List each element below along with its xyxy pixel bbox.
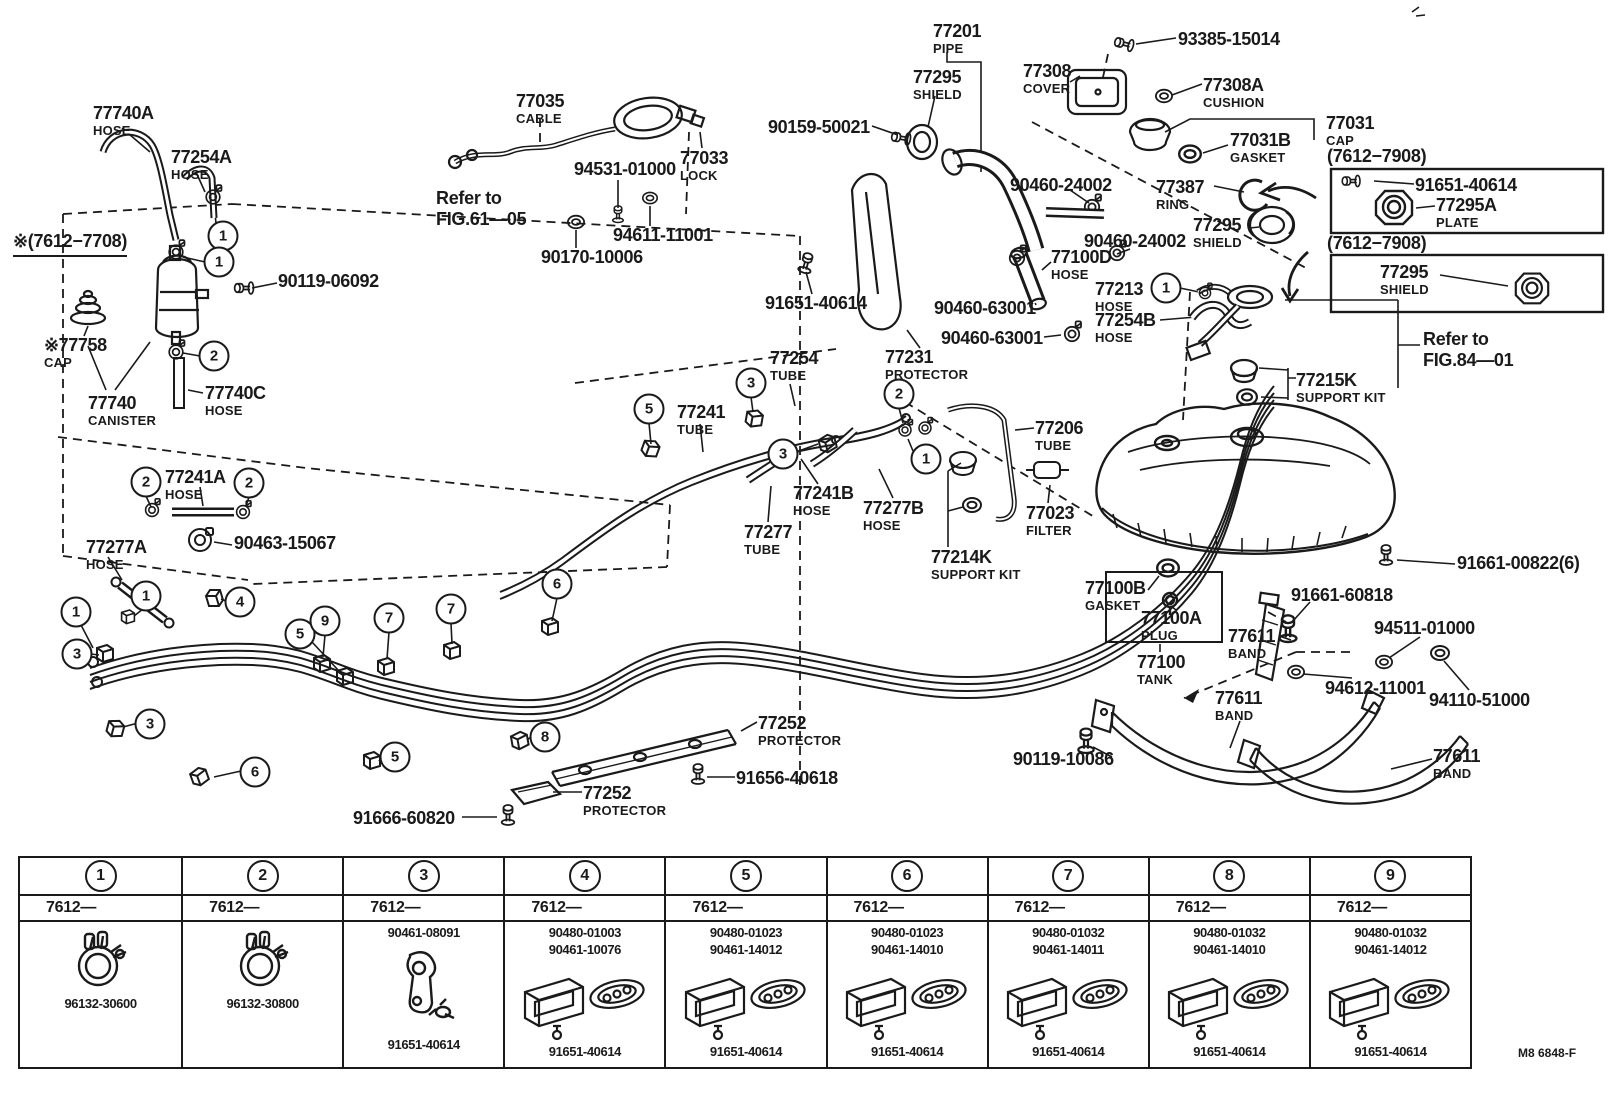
part-number: 77100B: [1085, 579, 1146, 597]
part-name: SHIELD: [1193, 236, 1242, 249]
table-part-number: 90461-14012: [1354, 942, 1426, 959]
part-number: 77241B: [793, 484, 854, 502]
callout-77611-49: 77611BAND: [1228, 627, 1275, 660]
ref-circle-3: 3: [135, 709, 166, 740]
callout-77031-20: 77031CAP: [1326, 114, 1374, 147]
table-col-header: 2: [183, 858, 342, 896]
ref-circle-9: 9: [310, 606, 341, 637]
part-number: 77277A: [86, 538, 147, 556]
part-number: 91661-60818: [1291, 586, 1393, 604]
table-ref-circle-3: 3: [408, 860, 440, 892]
dashed-arrowhead: [1184, 689, 1199, 703]
table-column-9: 97612—90480-0103290461-1401291651-40614: [1309, 858, 1470, 1067]
note-1: Refer toFIG.61—05: [436, 188, 526, 229]
table-cell-body: 90480-0103290461-1401091651-40614: [1150, 922, 1309, 1067]
part-number: 77611: [1433, 747, 1480, 765]
part-number: 77033: [680, 149, 728, 167]
part-number: 77611: [1215, 689, 1262, 707]
part-name: HOSE: [793, 504, 854, 517]
table-col-header: 4: [505, 858, 664, 896]
part-number: 77231: [885, 348, 968, 366]
table-ref-circle-9: 9: [1374, 860, 1406, 892]
part-number: 77206: [1035, 419, 1083, 437]
ref-circle-8: 8: [530, 722, 561, 753]
table-period: 7612—: [344, 896, 503, 922]
callout-77100B-46: 77100BGASKET: [1085, 579, 1146, 612]
table-part-number: 90480-01032: [1193, 925, 1265, 942]
note-line: FIG.84—01: [1423, 350, 1513, 371]
part-name: SUPPORT KIT: [931, 568, 1021, 581]
table-ref-circle-6: 6: [891, 860, 923, 892]
part-number: 77611: [1228, 627, 1275, 645]
note-line: FIG.61—05: [436, 209, 526, 230]
note-line: Refer to: [1423, 329, 1513, 350]
part-name: TUBE: [677, 423, 725, 436]
callout-77295-26: 77295SHIELD: [1380, 263, 1429, 296]
table-col-header: 6: [828, 858, 987, 896]
part-name: PIPE: [933, 42, 981, 55]
callout-9011910086-55: 90119-10086: [1013, 750, 1114, 768]
part-number: 77213: [1095, 280, 1143, 298]
part-name: HOSE: [863, 519, 924, 532]
parts-variant-table: 17612—96132-3060027612—96132-3080037612—…: [18, 856, 1472, 1069]
table-part-number: 90461-14010: [1193, 942, 1265, 959]
parts-diagram-page: M8 6848-F 17612—96132-3060027612—96132-3…: [0, 0, 1608, 1102]
table-period: 7612—: [1311, 896, 1470, 922]
figure-code: M8 6848-F: [1518, 1046, 1576, 1060]
table-period: 7612—: [1150, 896, 1309, 922]
part-name: BAND: [1228, 647, 1275, 660]
channel-clamp-illustration: [1322, 960, 1458, 1043]
table-cell-body: 96132-30600: [20, 922, 181, 1067]
callout-9461211001-52: 94612-11001: [1325, 679, 1426, 697]
callout-77031B-21: 77031BGASKET: [1230, 131, 1291, 164]
channel-clamp-illustration: [517, 960, 653, 1043]
part-number: 77387: [1156, 178, 1204, 196]
part-number: 77254B: [1095, 311, 1156, 329]
part-number: 91656-40618: [736, 769, 838, 787]
part-number: 90460-63001: [934, 299, 1036, 317]
table-period: 7612—: [20, 896, 181, 922]
ref-circle-3: 3: [768, 439, 799, 470]
part-number: 90460-24002: [1010, 176, 1112, 194]
part-number: 77308: [1023, 62, 1071, 80]
callout-77252-57: 77252PROTECTOR: [758, 714, 841, 747]
callout-77252-59: 77252PROTECTOR: [583, 784, 666, 817]
part-number: 77023: [1026, 504, 1074, 522]
note-2: Refer toFIG.84—01: [1423, 329, 1513, 370]
part-number: 94612-11001: [1325, 679, 1426, 697]
callout-77308A-19: 77308ACUSHION: [1203, 76, 1264, 109]
table-column-4: 47612—90480-0100390461-1007691651-40614: [503, 858, 664, 1067]
part-name: PROTECTOR: [758, 734, 841, 747]
part-number: 90170-10006: [541, 248, 643, 266]
part-number: 77100A: [1141, 609, 1202, 627]
part-number: 77254: [770, 349, 818, 367]
ref-circle-5: 5: [634, 394, 665, 425]
part-name: LOCK: [680, 169, 728, 182]
table-part-number: 91651-40614: [1354, 1044, 1426, 1061]
part-name: CANISTER: [88, 414, 156, 427]
part-number: 77241A: [165, 468, 226, 486]
note-3: (7612−7908): [1327, 146, 1426, 167]
callout-77277-43: 77277TUBE: [744, 523, 792, 556]
part-name: COVER: [1023, 82, 1071, 95]
part-number: 77295A: [1436, 196, 1497, 214]
table-column-5: 57612—90480-0102390461-1401291651-40614: [664, 858, 825, 1067]
callout-77740C-5: 77740CHOSE: [205, 384, 266, 417]
callout-77100A-47: 77100APLUG: [1141, 609, 1202, 642]
table-part-number: 90461-14011: [1032, 942, 1104, 959]
table-ref-circle-1: 1: [85, 860, 117, 892]
part-name: SHIELD: [913, 88, 962, 101]
table-cell-body: 90480-0102390461-1401291651-40614: [666, 922, 825, 1067]
callout-9046315067-7: 90463-15067: [234, 534, 336, 552]
part-name: FILTER: [1026, 524, 1074, 537]
callout-77295-25: 77295SHIELD: [1193, 216, 1242, 249]
callout-77611-54: 77611BAND: [1215, 689, 1262, 722]
part-number: 77031: [1326, 114, 1374, 132]
table-period: 7612—: [989, 896, 1148, 922]
table-part-number: 91651-40614: [1032, 1044, 1104, 1061]
ring-clamp-illustration: [227, 926, 299, 995]
table-ref-circle-7: 7: [1052, 860, 1084, 892]
table-column-7: 77612—90480-0103290461-1401191651-40614: [987, 858, 1148, 1067]
table-part-number: 90480-01003: [549, 925, 621, 942]
part-number: 77295: [1380, 263, 1429, 281]
part-name: BAND: [1433, 767, 1480, 780]
part-number: 77214K: [931, 548, 1021, 566]
part-number: 90463-15067: [234, 534, 336, 552]
ref-circle-1: 1: [911, 444, 942, 475]
part-name: CAP: [44, 356, 107, 369]
part-number: 77035: [516, 92, 564, 110]
callout-77206-39: 77206TUBE: [1035, 419, 1083, 452]
callout-9015950021-16: 90159-50021: [768, 118, 870, 136]
callout-9046063001-34: 90460-63001: [941, 329, 1043, 347]
ring-clamp-illustration: [65, 926, 137, 995]
table-part-number: 91651-40614: [388, 1037, 460, 1054]
ref-circle-2: 2: [884, 379, 915, 410]
part-number: 77254A: [171, 148, 232, 166]
table-part-number: 90461-08091: [388, 925, 460, 942]
part-name: RING: [1156, 198, 1204, 211]
callout-77254B-31: 77254BHOSE: [1095, 311, 1156, 344]
part-number: 77308A: [1203, 76, 1264, 94]
part-number: 77252: [758, 714, 841, 732]
table-part-number: 96132-30800: [227, 996, 299, 1013]
callout-77295A-23: 77295APLATE: [1436, 196, 1497, 229]
callout-77213-30: 77213HOSE: [1095, 280, 1143, 313]
callout-77033-11: 77033LOCK: [680, 149, 728, 182]
table-column-1: 17612—96132-30600: [20, 858, 181, 1067]
ref-circle-2: 2: [199, 341, 230, 372]
note-line: (7612−7908): [1327, 146, 1426, 167]
callout-77100D-29: 77100DHOSE: [1051, 248, 1112, 281]
part-name: CUSHION: [1203, 96, 1264, 109]
part-number: 91661-00822(6): [1457, 554, 1580, 572]
part-name: HOSE: [165, 488, 226, 501]
table-part-number: 90480-01032: [1354, 925, 1426, 942]
table-part-number: 91651-40614: [710, 1044, 782, 1061]
callout-77201-14: 77201PIPE: [933, 22, 981, 55]
part-number: 90460-63001: [941, 329, 1043, 347]
callout-9011906092-2: 90119-06092: [278, 272, 379, 290]
callout-9338515014-18: 93385-15014: [1178, 30, 1280, 48]
part-number: 91651-40614: [765, 294, 867, 312]
part-name: SHIELD: [1380, 283, 1429, 296]
note-line: Refer to: [436, 188, 526, 209]
part-name: GASKET: [1230, 151, 1291, 164]
part-number: 77295: [913, 68, 962, 86]
table-col-header: 1: [20, 858, 181, 896]
callout-9046024002-27: 90460-24002: [1010, 176, 1112, 194]
table-column-3: 37612—90461-0809191651-40614: [342, 858, 503, 1067]
table-period: 7612—: [828, 896, 987, 922]
callout-77231-35: 77231PROTECTOR: [885, 348, 968, 381]
callout-77295-15: 77295SHIELD: [913, 68, 962, 101]
part-number: 77100D: [1051, 248, 1112, 266]
callout-77214K-44: 77214KSUPPORT KIT: [931, 548, 1021, 581]
part-name: BAND: [1215, 709, 1262, 722]
table-ref-circle-4: 4: [569, 860, 601, 892]
part-number: 77295: [1193, 216, 1242, 234]
table-cell-body: 90461-0809191651-40614: [344, 922, 503, 1067]
table-part-number: 90461-10076: [549, 942, 621, 959]
channel-clamp-illustration: [1161, 960, 1297, 1043]
table-part-number: 90461-14012: [710, 942, 782, 959]
part-number: 90119-06092: [278, 272, 379, 290]
callout-9017010006-13: 90170-10006: [541, 248, 643, 266]
ref-circle-4: 4: [225, 587, 256, 618]
note-line: (7612−7908): [1327, 233, 1426, 254]
callout-77277B-41: 77277BHOSE: [863, 499, 924, 532]
table-cell-body: 96132-30800: [183, 922, 342, 1067]
part-number: 94511-01000: [1374, 619, 1475, 637]
table-part-number: 91651-40614: [549, 1044, 621, 1061]
callout-77254A-1: 77254AHOSE: [171, 148, 232, 181]
part-name: HOSE: [205, 404, 266, 417]
ref-circle-1: 1: [61, 597, 92, 628]
ref-circle-7: 7: [374, 603, 405, 634]
channel-clamp-illustration: [678, 960, 814, 1043]
part-name: TUBE: [770, 369, 818, 382]
table-column-6: 67612—90480-0102390461-1401091651-40614: [826, 858, 987, 1067]
callout-9166660820-60: 91666-60820: [353, 809, 455, 827]
callout-9451101000-50: 94511-01000: [1374, 619, 1475, 637]
callout-9165140614-22: 91651-40614: [1415, 176, 1517, 194]
part-number: 90119-10086: [1013, 750, 1114, 768]
ref-circle-1: 1: [1151, 273, 1182, 304]
part-name: HOSE: [171, 168, 232, 181]
part-number: 77241: [677, 403, 725, 421]
part-number: 77100: [1137, 653, 1185, 671]
callout-77241B-40: 77241BHOSE: [793, 484, 854, 517]
callout-77254-37: 77254TUBE: [770, 349, 818, 382]
table-cell-body: 90480-0100390461-1007691651-40614: [505, 922, 664, 1067]
part-number: ※77758: [44, 336, 107, 354]
table-period: 7612—: [505, 896, 664, 922]
channel-clamp-illustration: [1000, 960, 1136, 1043]
part-number: 91651-40614: [1415, 176, 1517, 194]
callout-77241-38: 77241TUBE: [677, 403, 725, 436]
part-number: 77277B: [863, 499, 924, 517]
table-ref-circle-2: 2: [247, 860, 279, 892]
part-name: PLATE: [1436, 216, 1497, 229]
table-period: 7612—: [666, 896, 825, 922]
ref-circle-1: 1: [204, 247, 235, 278]
ref-circle-5: 5: [380, 742, 411, 773]
part-number: 77201: [933, 22, 981, 40]
part-name: CABLE: [516, 112, 564, 125]
callout-9411051000-53: 94110-51000: [1429, 691, 1530, 709]
part-name: HOSE: [93, 124, 154, 137]
part-number: 94531-01000: [574, 160, 676, 178]
table-col-header: 3: [344, 858, 503, 896]
table-col-header: 7: [989, 858, 1148, 896]
callout-77611-56: 77611BAND: [1433, 747, 1480, 780]
table-column-2: 27612—96132-30800: [181, 858, 342, 1067]
ref-circle-2: 2: [234, 468, 265, 499]
part-name: HOSE: [86, 558, 147, 571]
part-name: SUPPORT KIT: [1296, 391, 1386, 404]
table-part-number: 90461-14010: [871, 942, 943, 959]
table-col-header: 8: [1150, 858, 1309, 896]
part-name: TANK: [1137, 673, 1185, 686]
table-part-number: 90480-01032: [1032, 925, 1104, 942]
callout-77023-42: 77023FILTER: [1026, 504, 1074, 537]
ref-circle-3: 3: [62, 639, 93, 670]
table-cell-body: 90480-0103290461-1401191651-40614: [989, 922, 1148, 1067]
table-cell-body: 90480-0102390461-1401091651-40614: [828, 922, 987, 1067]
callout-77100-51: 77100TANK: [1137, 653, 1185, 686]
part-number: 77277: [744, 523, 792, 541]
part-name: TUBE: [1035, 439, 1083, 452]
part-number: 93385-15014: [1178, 30, 1280, 48]
part-name: PLUG: [1141, 629, 1202, 642]
ref-circle-1: 1: [131, 581, 162, 612]
table-ref-circle-5: 5: [730, 860, 762, 892]
part-number: 90159-50021: [768, 118, 870, 136]
table-part-number: 90480-01023: [871, 925, 943, 942]
ref-circle-6: 6: [240, 757, 271, 788]
part-name: GASKET: [1085, 599, 1146, 612]
callout-91661008226-45: 91661-00822(6): [1457, 554, 1580, 572]
table-col-header: 5: [666, 858, 825, 896]
table-period: 7612—: [183, 896, 342, 922]
table-col-header: 9: [1311, 858, 1470, 896]
callout-77035-9: 77035CABLE: [516, 92, 564, 125]
note-line: ※(7612−7708): [13, 231, 127, 252]
part-name: HOSE: [1095, 331, 1156, 344]
part-number: 94110-51000: [1429, 691, 1530, 709]
hook-clamp-illustration: [376, 943, 472, 1036]
note-4: (7612−7908): [1327, 233, 1426, 254]
table-part-number: 91651-40614: [1193, 1044, 1265, 1061]
table-column-8: 87612—90480-0103290461-1401091651-40614: [1148, 858, 1309, 1067]
callout-9046063001-33: 90460-63001: [934, 299, 1036, 317]
part-number: 77031B: [1230, 131, 1291, 149]
callout-77387-24: 77387RING: [1156, 178, 1204, 211]
callout-77740-4: 77740CANISTER: [88, 394, 156, 427]
part-number: 77252: [583, 784, 666, 802]
table-part-number: 91651-40614: [871, 1044, 943, 1061]
part-number: 77215K: [1296, 371, 1386, 389]
ref-circle-7: 7: [436, 594, 467, 625]
callout-9165140614-32: 91651-40614: [765, 294, 867, 312]
leader-lines: [81, 38, 1508, 817]
part-name: TUBE: [744, 543, 792, 556]
part-name: PROTECTOR: [583, 804, 666, 817]
callout-77308-17: 77308COVER: [1023, 62, 1071, 95]
callout-9453101000-10: 94531-01000: [574, 160, 676, 178]
table-part-number: 96132-30600: [64, 996, 136, 1013]
callout-9166160818-48: 91661-60818: [1291, 586, 1393, 604]
callout-9165640618-58: 91656-40618: [736, 769, 838, 787]
ref-circle-2: 2: [131, 467, 162, 498]
callout-9461111001-12: 94611-11001: [613, 226, 713, 244]
part-number: 77740C: [205, 384, 266, 402]
note-0: ※(7612−7708): [13, 231, 127, 257]
part-number: 77740: [88, 394, 156, 412]
callout-77215K-36: 77215KSUPPORT KIT: [1296, 371, 1386, 404]
table-part-number: 90480-01023: [710, 925, 782, 942]
part-number: 94611-11001: [613, 226, 713, 244]
channel-clamp-illustration: [839, 960, 975, 1043]
part-number: 77740A: [93, 104, 154, 122]
callout-77241A-6: 77241AHOSE: [165, 468, 226, 501]
ref-circle-3: 3: [736, 368, 767, 399]
table-ref-circle-8: 8: [1213, 860, 1245, 892]
callout-77758-3: ※77758CAP: [44, 336, 107, 369]
callout-77740A-0: 77740AHOSE: [93, 104, 154, 137]
part-number: 91666-60820: [353, 809, 455, 827]
callout-77277A-8: 77277AHOSE: [86, 538, 147, 571]
table-cell-body: 90480-0103290461-1401291651-40614: [1311, 922, 1470, 1067]
ref-circle-6: 6: [542, 569, 573, 600]
